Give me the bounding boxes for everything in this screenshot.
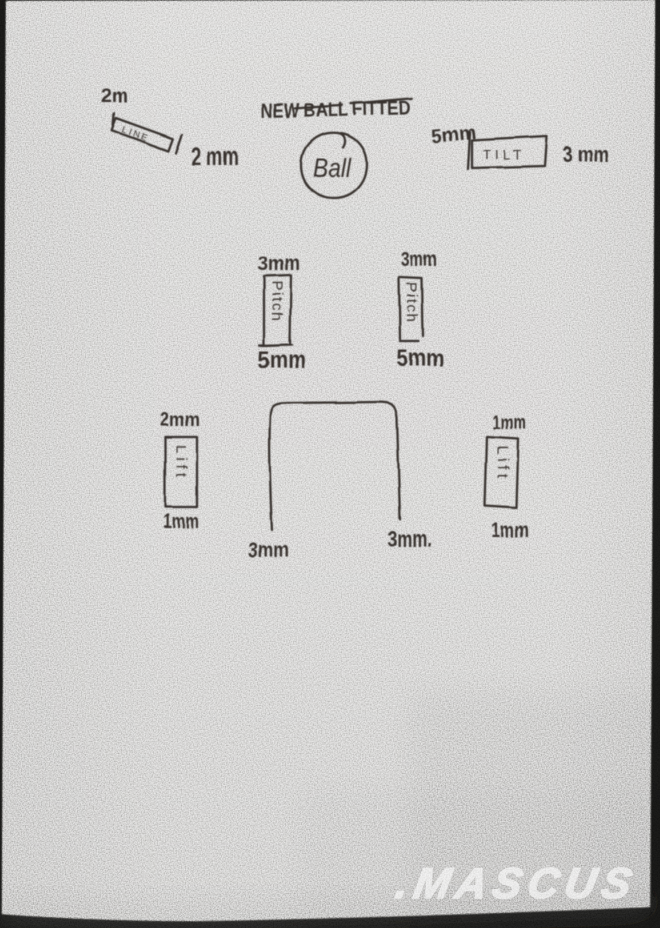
svg-text:1mm: 1mm — [492, 412, 526, 434]
svg-text:3mm: 3mm — [401, 249, 437, 271]
svg-text:1mm: 1mm — [491, 520, 529, 542]
svg-text:3mm: 3mm — [248, 539, 288, 562]
svg-text:3 mm: 3 mm — [563, 142, 609, 167]
svg-text:5mm: 5mm — [258, 347, 306, 374]
svg-text:Pitch: Pitch — [403, 282, 420, 323]
svg-text:Lift: Lift — [172, 445, 189, 481]
svg-text:1mm: 1mm — [163, 511, 199, 533]
svg-text:Pitch: Pitch — [268, 281, 285, 322]
svg-text:3mm.: 3mm. — [388, 526, 432, 552]
svg-text:.MASCUS: .MASCUS — [392, 860, 641, 908]
svg-text:2mm: 2mm — [160, 410, 200, 431]
svg-text:Lift: Lift — [494, 446, 511, 482]
svg-text:Ball: Ball — [313, 153, 352, 183]
svg-text:5mm: 5mm — [397, 345, 444, 372]
svg-text:TILT: TILT — [483, 147, 525, 162]
svg-text:2m: 2m — [101, 86, 128, 107]
svg-text:2 mm: 2 mm — [191, 141, 239, 171]
svg-text:3mm: 3mm — [258, 253, 300, 275]
